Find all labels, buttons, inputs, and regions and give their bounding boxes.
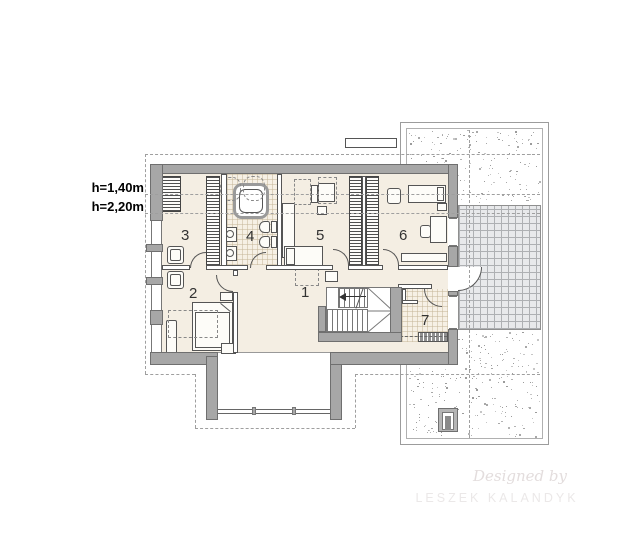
roof-stipple-dot [506,370,507,371]
roof-stipple-dot [522,425,523,426]
roof-stipple-dot [466,348,467,349]
roof-stipple-dot [485,349,486,350]
roof-stipple-dot [489,168,490,169]
room-label-4: 4 [246,228,254,245]
roof-stipple-dot [507,158,508,159]
chimney-core [445,416,451,430]
roof-stipple-dot [509,434,510,435]
roof-stipple-dot [410,143,412,145]
roof-stipple-dot [527,200,529,201]
roof-stipple-dot [537,143,539,144]
roof-stipple-dot [432,142,433,143]
roof-slope-dashed-area [168,310,218,338]
chair-dashed [294,179,311,205]
wall-top [150,164,458,174]
room-label-6: 6 [399,227,407,244]
roof-stipple-dot [466,350,467,351]
roof-stipple-dot [532,418,533,419]
roof-stipple-dot [483,414,485,415]
roof-stipple-dot [517,400,518,401]
roof-stipple-dot [431,392,433,393]
roof-stipple-dot [448,134,449,135]
roof-stipple-dot [531,135,532,136]
roof-stipple-dot [476,131,478,133]
roof-stipple-dot [528,197,530,198]
roof-stipple-dot [530,382,531,383]
roof-stipple-dot [532,385,533,386]
roof-stipple-dot [416,422,417,423]
roof-stipple-dot [415,135,416,136]
roof-stipple-dot [417,379,419,380]
roof-stipple-dot [522,143,523,144]
roof-stipple-dot [419,417,420,418]
roof-stipple-dot [520,162,521,163]
roof-stipple-dot [473,376,475,377]
roof-stipple-dot [509,171,511,172]
roof-stipple-dot [416,430,417,431]
watermark-script: Designed by [440,467,600,485]
roof-stipple-dot [471,435,472,436]
roof-stipple-dot [516,171,518,172]
roof-stipple-dot [494,398,496,399]
hall-cabinet [325,271,338,282]
roof-stipple-dot [484,337,485,338]
roof-stipple-dot [443,376,444,377]
roof-stipple-dot [432,383,433,384]
toilet-bowl [259,221,270,233]
roof-stipple-dot [431,149,432,150]
roof-stipple-dot [432,388,433,389]
roof-stipple-dot [424,137,425,138]
roof-stipple-dot [500,406,501,407]
roof-stipple-dot [455,380,456,381]
roof-stipple-dot [480,352,481,353]
roof-stipple-dot [444,162,445,163]
shelf [401,253,447,262]
roof-stipple-dot [479,168,481,170]
roof-stipple-dot [514,138,515,139]
roof-stipple-dot [512,338,513,339]
roof-stipple-dot [481,366,482,367]
wall-hall-top-e [398,265,448,270]
washbasin-bowl [226,249,234,257]
roof-stipple-dot [531,354,533,355]
roof-stipple-dot [442,158,444,159]
roof-stipple-dot [460,148,461,149]
roof-stipple-dot [470,149,471,150]
room-label-3: 3 [181,227,189,244]
roofline-step-b [195,374,196,428]
roof-stipple-dot [507,351,508,352]
roof-stipple-dot [535,436,537,438]
roof-stipple-dot [437,387,438,388]
roof-stipple-dot [516,434,517,435]
roof-stipple-dot [424,426,425,427]
roof-stipple-dot [522,408,523,409]
roof-stipple-dot [471,357,472,358]
roof-stipple-dot [500,133,501,134]
roof-stipple-dot [500,177,501,178]
roof-stipple-dot [464,180,465,181]
nightstand [387,188,401,204]
roof-stipple-dot [492,334,493,335]
roof-stipple-dot [414,407,415,408]
roof-stipple-dot [478,396,480,397]
roof-stipple-dot [476,196,477,197]
roof-stipple-dot [491,365,492,366]
roof-stipple-dot [533,368,535,370]
roof-stipple-dot [461,199,462,200]
roof-stipple-dot [537,372,539,373]
nightstand [220,292,233,301]
roof-stipple-dot [501,377,502,378]
roof-stipple-dot [479,358,481,359]
window-left-3 [151,285,162,310]
roof-stipple-dot [460,159,462,160]
roof-stipple-dot [497,365,498,366]
roof-stipple-dot [462,413,464,414]
roof-stipple-dot [445,383,447,384]
roof-stipple-dot [491,368,493,369]
roof-stipple-dot [476,398,477,399]
roof-stipple-dot [511,416,512,417]
roof-stipple-dot [493,404,494,405]
roof-stipple-dot [428,405,429,406]
roof-stipple-dot [523,354,525,355]
room7-niche-wall-h [402,300,418,304]
roof-stipple-dot [465,377,467,379]
roof-stipple-dot [472,378,473,379]
roof-stipple-dot [484,181,485,182]
roof-stipple-dot [502,140,503,141]
roof-stipple-dot [515,404,516,405]
roof-stipple-dot [460,134,461,135]
roof-stipple-dot [423,387,424,388]
roof-stipple-dot [463,190,464,191]
roof-stipple-dot [488,175,489,176]
wall-hall-top-a [162,265,190,270]
roof-stipple-dot [418,137,420,139]
roof-stipple-dot [532,334,533,335]
roof-stipple-dot [445,369,446,370]
roof-stipple-dot [515,436,516,437]
roof-stipple-dot [491,357,492,358]
roof-stipple-dot [517,146,519,148]
upper-wall-bar [345,138,397,148]
roof-stipple-dot [458,175,459,176]
roof-stipple-dot [478,345,480,347]
roof-stipple-dot [517,142,518,143]
roof-stipple-dot [475,415,476,416]
roof-stipple-dot [460,377,461,378]
roof-stipple-dot [522,139,523,140]
roof-stipple-dot [503,381,505,383]
wall-right-2 [448,246,458,267]
roof-stipple-dot [409,404,411,405]
roof-stipple-dot [500,354,501,355]
roof-stipple-dot [511,366,513,367]
window-right-2 [449,296,457,329]
roof-stipple-dot [506,337,508,338]
room-label-2: 2 [189,285,197,302]
void-window-band [218,409,330,414]
wall-right-1 [448,164,458,218]
roof-stipple-dot [410,371,411,372]
roof-stipple-dot [510,176,511,177]
roof-stipple-dot [528,140,529,141]
roof-stipple-dot [514,426,516,427]
roof-stipple-dot [433,156,435,157]
roof-stipple-dot [518,366,519,367]
wall-cabinet [437,203,447,211]
roof-stipple-dot [519,434,521,436]
roof-stipple-dot [479,202,480,203]
roof-stipple-dot [516,134,517,135]
roof-stipple-dot [472,428,473,429]
roof-stipple-dot [533,422,534,423]
roof-stipple-dot [472,132,474,133]
roof-stipple-dot [441,435,442,436]
roof-stipple-dot [526,185,527,186]
floor-plan: h=1,40m h=2,20m 1 2 3 4 5 6 7 Designed b… [0,0,638,556]
roof-stipple-dot [446,387,448,389]
roof-stipple-dot [486,199,487,200]
roof-stipple-dot [440,143,442,144]
roof-stipple-dot [502,354,503,355]
roof-stipple-dot [421,155,422,156]
void-wall-left [206,356,218,420]
roof-stipple-dot [510,170,512,171]
roof-stipple-dot [535,412,537,413]
roof-stipple-dot [497,132,499,133]
roof-stipple-dot [417,386,418,387]
roofline-step-a [145,374,195,375]
armchair-cushion [170,249,181,261]
roof-stipple-dot [532,382,533,383]
roof-stipple-dot [463,135,465,136]
bidet-bowl [259,236,270,248]
roof-stipple-dot [441,376,442,377]
roof-stipple-dot [506,386,508,387]
roof-stipple-dot [495,411,496,412]
roof-stipple-dot [471,351,472,352]
roof-stipple-dot [480,198,481,199]
roof-stipple-dot [506,349,507,350]
roof-stipple-dot [492,168,493,169]
height-line-140 [145,194,540,195]
roof-stipple-dot [476,389,478,391]
watermark-name: LESZEK KALANDYK [402,491,592,505]
roof-stipple-dot [488,353,489,354]
roof-stipple-dot [506,182,507,183]
roof-stipple-dot [502,411,503,412]
window-pier [146,277,163,285]
roof-stipple-dot [527,392,528,393]
roof-stipple-dot [460,180,461,181]
roof-stipple-dot [539,401,540,402]
roof-stipple-dot [409,378,411,379]
roof-stipple-dot [523,428,525,429]
roof-stipple-dot [508,195,509,196]
wall-room2-hall-b [233,292,238,353]
void-window-mullion [292,407,296,415]
roof-stipple-dot [439,150,440,151]
roof-stipple-dot [513,196,514,197]
roof-stipple-dot [524,164,526,165]
roof-stipple-dot [436,432,437,433]
roof-stipple-dot [498,173,499,174]
room-label-1: 1 [301,284,309,301]
roof-stipple-dot [419,383,420,384]
roof-stipple-dot [485,336,487,338]
roof-stipple-dot [411,158,412,159]
roof-stipple-dot [484,367,486,368]
roof-stipple-dot [538,183,539,184]
roof-stipple-dot [501,413,502,414]
roof-stipple-dot [426,161,427,162]
roof-stipple-dot [529,407,531,409]
roof-stipple-dot [435,402,437,403]
void-wall-right [330,356,342,420]
roof-stipple-dot [522,332,524,333]
roofline-step-d [355,374,540,375]
roof-stipple-dot [509,189,510,190]
height-line-220 [145,213,540,214]
roof-stipple-dot [432,396,433,397]
roof-stipple-dot [471,402,472,403]
roof-stipple-dot [425,425,426,426]
roof-stipple-dot [537,395,538,396]
roof-stipple-dot [484,403,486,405]
roof-stipple-dot [495,341,496,342]
skylight-dashed [243,176,265,201]
room5-wardrobe [349,176,362,266]
roof-stipple-dot [458,409,459,410]
roof-stipple-dot [413,404,415,405]
roof-stipple-dot [476,334,477,335]
roof-stipple-dot [444,400,445,401]
height-label-220: h=2,20m [86,199,144,214]
roof-stipple-dot [538,192,539,193]
roof-stipple-dot [505,416,506,417]
chair-dashed [318,177,337,204]
roof-stipple-dot [432,131,433,132]
roof-stipple-dot [476,378,477,379]
roof-stipple-dot [442,134,443,135]
roof-stipple-dot [523,382,524,383]
roof-stipple-dot [483,159,484,160]
roof-stipple-dot [511,379,513,380]
roof-stipple-dot [467,353,468,354]
roof-stipple-dot [471,340,472,341]
roof-stipple-dot [423,382,424,383]
roof-stipple-dot [519,340,520,341]
roof-stipple-dot [480,363,481,364]
stair-wall-bottom [318,332,402,342]
roof-stipple-dot [497,137,498,138]
roof-stipple-dot [508,135,509,136]
roof-stipple-dot [485,363,487,364]
roof-stipple-dot [526,372,527,373]
roof-stipple-dot [525,346,527,348]
wall-hall-top-d [348,265,383,270]
roof-stipple-dot [491,160,492,161]
roof-ridge-line [469,130,470,438]
roof-stipple-dot [465,168,466,169]
roof-stipple-dot [477,415,478,416]
roof-stipple-dot [502,407,503,408]
roof-stipple-dot [413,141,414,142]
roof-stipple-dot [419,414,420,415]
height-label-140: h=1,40m [86,180,144,195]
room-label-5: 5 [316,227,324,244]
radiator-axis [400,336,447,337]
roof-stipple-dot [413,429,414,430]
roof-stipple-dot [508,427,510,429]
roof-stipple-dot [524,196,525,197]
roof-stipple-dot [533,132,534,133]
roof-stipple-dot [502,360,503,361]
roof-stipple-dot [498,423,500,424]
roof-stipple-dot [437,137,439,138]
roof-stipple-dot [508,145,510,146]
radiator [418,332,448,342]
roof-stipple-dot [490,174,491,175]
washbasin-bowl [226,230,234,238]
roof-stipple-dot [439,396,440,397]
roof-stipple-dot [498,382,499,383]
roof-stipple-dot [501,421,503,422]
roof-stipple-dot [491,184,492,185]
roof-stipple-dot [486,137,487,138]
roof-stipple-dot [530,143,532,145]
roof-stipple-dot [507,376,508,377]
roof-stipple-dot [428,430,429,431]
roof-stipple-dot [414,376,416,377]
roof-stipple-dot [536,148,537,149]
window-left-1 [151,221,162,244]
roof-stipple-dot [536,166,537,167]
roof-stipple-dot [515,179,516,180]
roof-stipple-dot [457,150,458,151]
roof-stipple-dot [446,138,447,139]
roof-stipple-dot [511,200,512,201]
roof-stipple-dot [513,363,514,364]
roof-stipple-dot [528,365,529,366]
roof-stipple-dot [419,420,420,421]
wall-left-mid [150,310,163,325]
room6-wardrobe [366,176,379,266]
roof-stipple-dot [516,174,517,175]
roof-stipple-dot [434,144,435,145]
roof-stipple-dot [480,411,482,413]
roof-stipple-dot [492,398,493,399]
roof-stipple-dot [516,150,517,151]
roof-stipple-dot [419,368,420,369]
roof-stipple-dot [486,143,487,144]
roof-stipple-dot [520,353,521,354]
roof-stipple-dot [531,398,532,399]
roofline-left [145,154,146,374]
wall-hall-top-c [266,265,333,270]
roof-stipple-dot [447,136,448,137]
roof-stipple-dot [430,432,431,433]
room3-wardrobe-side [206,176,220,266]
roof-stipple-dot [522,366,523,367]
roof-stipple-dot [530,394,532,395]
roof-stipple-dot [511,389,512,390]
window-left-4 [151,325,162,352]
